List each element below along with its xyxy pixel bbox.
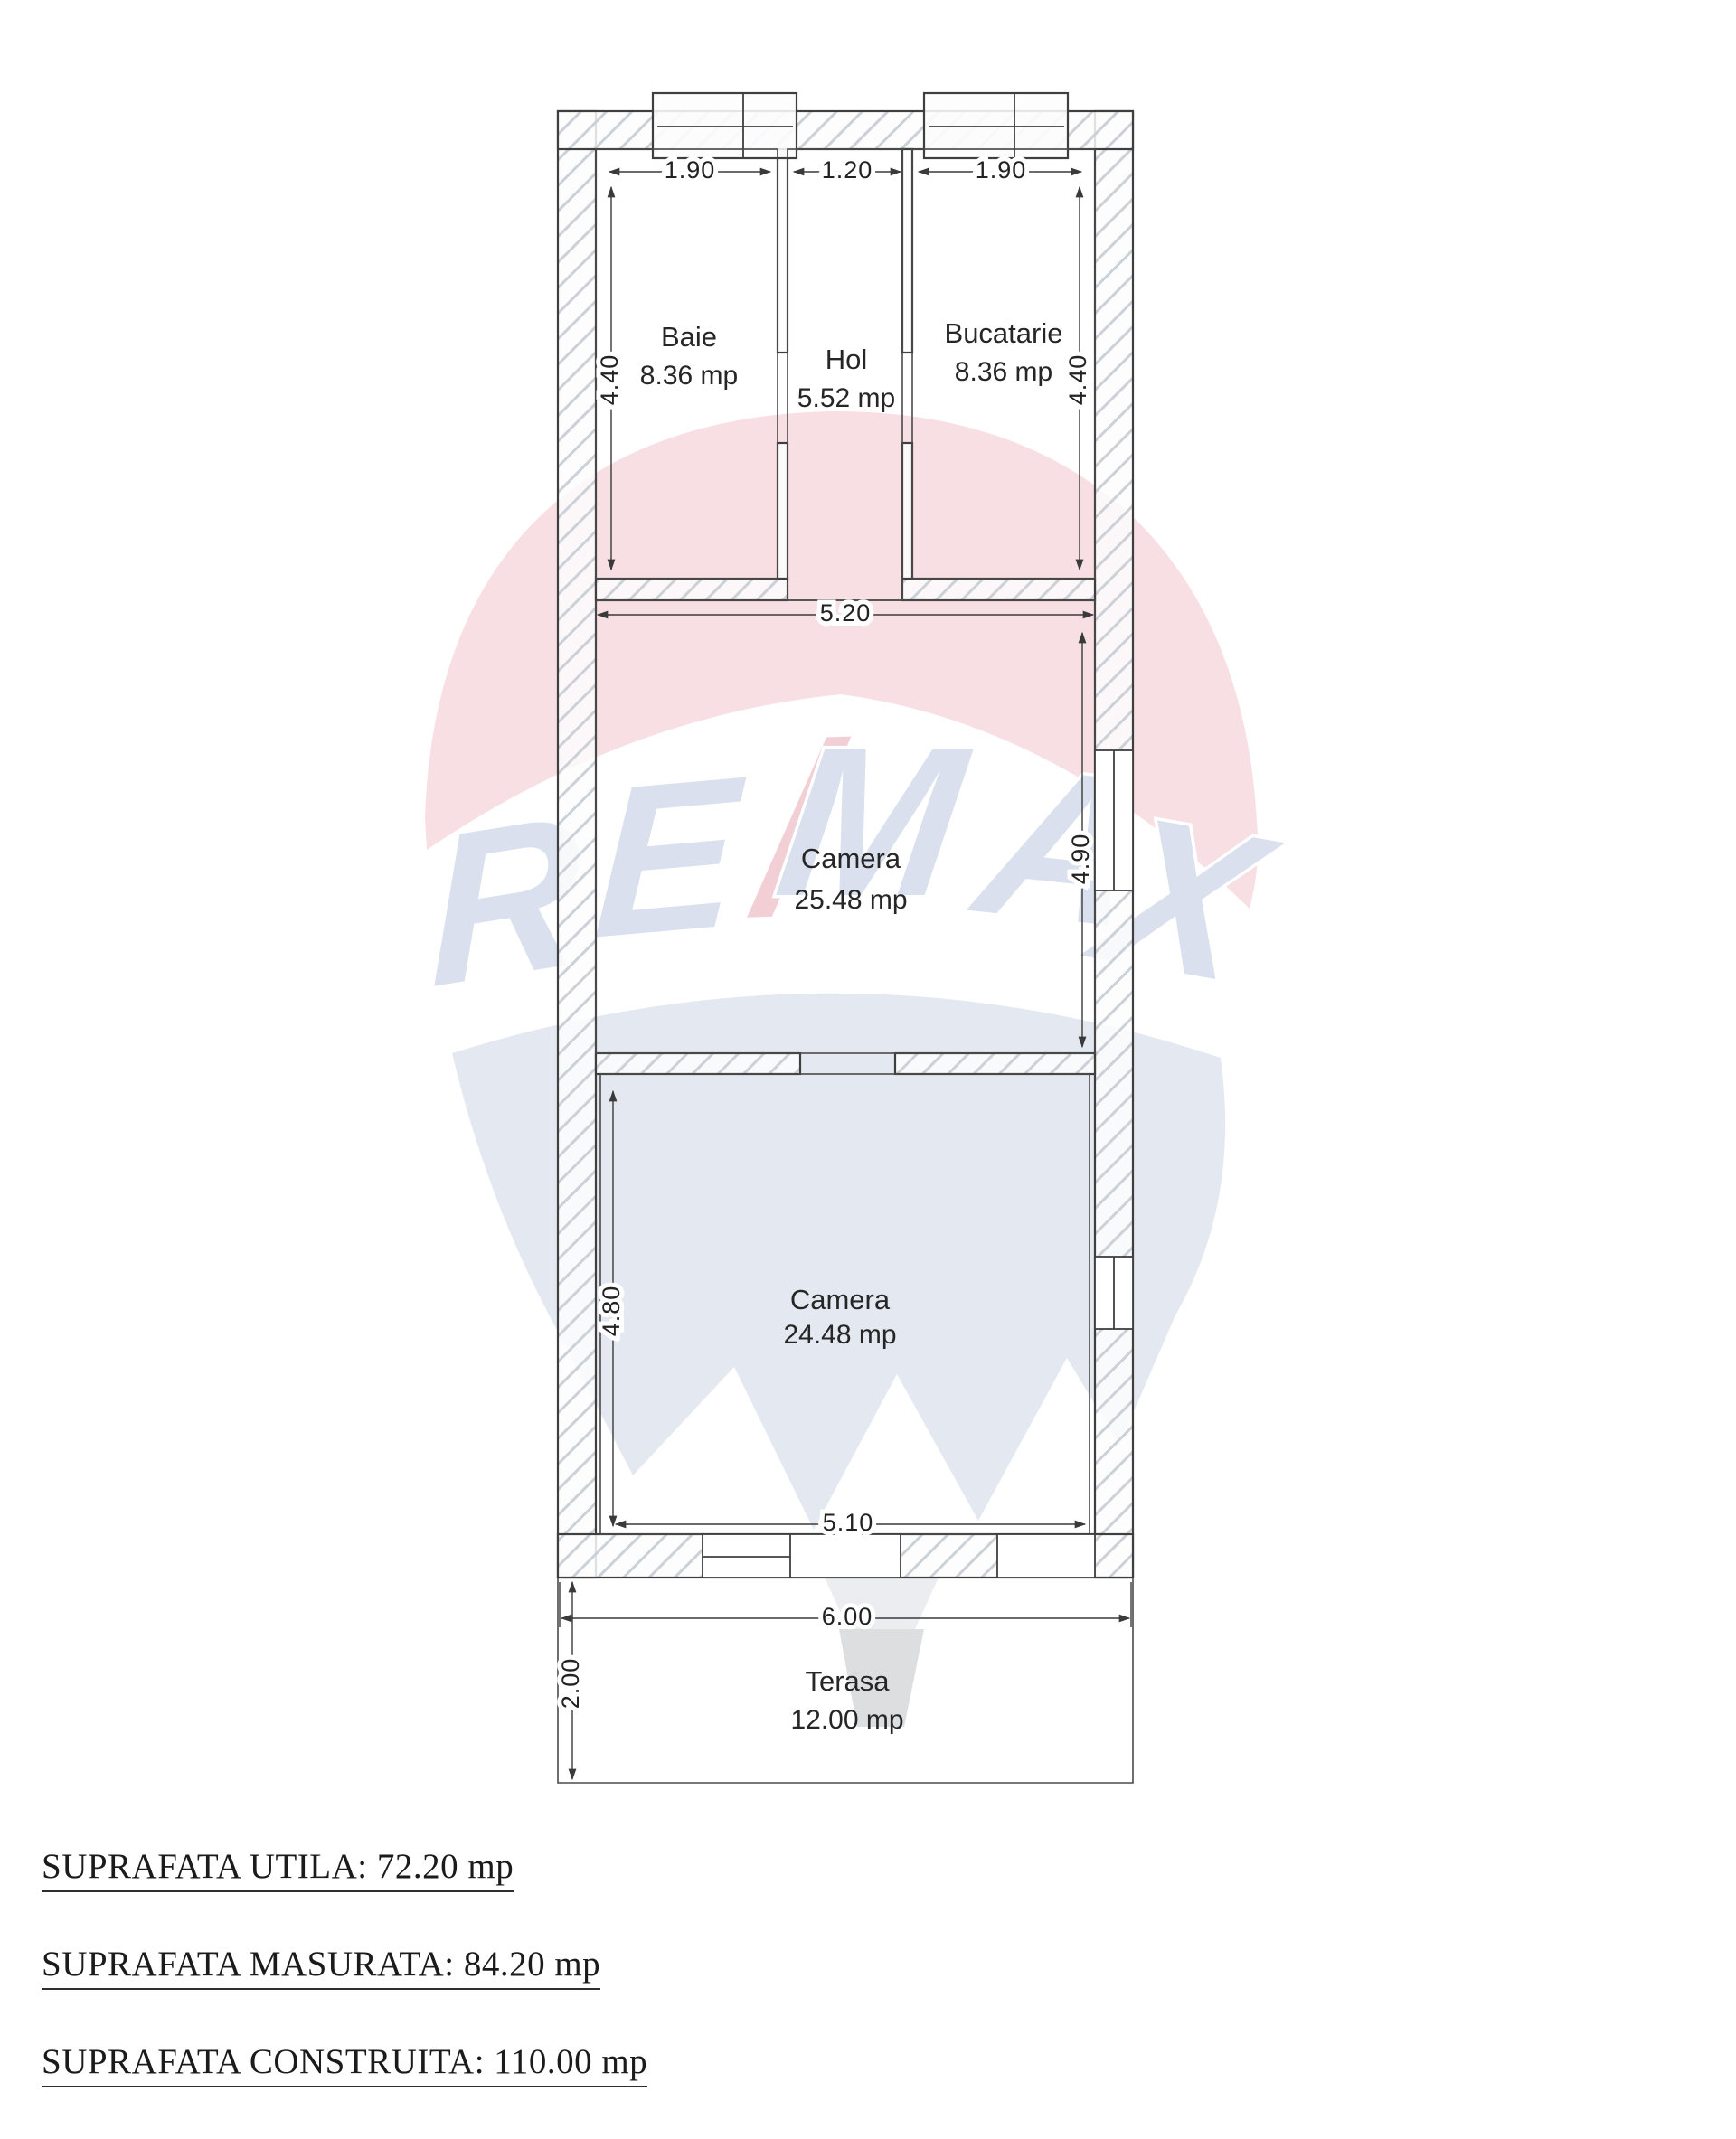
window-bottom-right xyxy=(997,1534,1095,1578)
summary-line-construita: SUPRAFATA CONSTRUITA: 110.00 mp xyxy=(42,2041,855,2087)
area-summary: SUPRAFATA UTILA: 72.20 mp SUPRAFATA MASU… xyxy=(42,1846,855,2139)
room-area-hol: 5.52 mp xyxy=(797,383,895,413)
summary-masurata-text: SUPRAFATA MASURATA: 84.20 mp xyxy=(42,1944,600,1990)
summary-utila-text: SUPRAFATA UTILA: 72.20 mp xyxy=(42,1846,514,1892)
french-window-bottom xyxy=(703,1534,901,1578)
wall-b-left xyxy=(596,1053,800,1074)
room-label-bucatarie: Bucatarie xyxy=(945,317,1063,349)
room-area-camera-mare: 25.48 mp xyxy=(794,885,907,915)
summary-line-utila: SUPRAFATA UTILA: 72.20 mp xyxy=(42,1846,855,1892)
dim-label-house-width: 6.00 xyxy=(822,1603,873,1630)
dim-label-camera-mare-height: 4.90 xyxy=(1067,834,1094,885)
dim-label-baie-height: 4.40 xyxy=(596,354,623,406)
floor-plan-svg: R E / M A X xyxy=(0,0,1736,2079)
wall-left xyxy=(558,111,596,1578)
partition-hol-bucatarie-lower xyxy=(902,443,912,579)
dim-label-camera-mica-height: 4.80 xyxy=(598,1286,625,1337)
room-area-bucatarie: 8.36 mp xyxy=(955,357,1052,387)
dim-label-hol-width: 1.20 xyxy=(822,156,873,184)
dim-label-bucatarie-height: 4.40 xyxy=(1064,354,1091,406)
room-label-camera-mare: Camera xyxy=(801,843,901,874)
dim-label-bucatarie-width: 1.90 xyxy=(976,156,1027,184)
partition-baie-hol-upper xyxy=(778,149,788,353)
room-label-camera-mica: Camera xyxy=(790,1284,891,1315)
wall-b-right xyxy=(895,1053,1095,1074)
room-label-baie: Baie xyxy=(661,321,717,353)
room-label-hol: Hol xyxy=(826,344,868,375)
room-area-baie: 8.36 mp xyxy=(640,361,738,391)
remax-letter-e: E xyxy=(590,731,749,984)
dim-label-camera-mica-width: 5.10 xyxy=(823,1509,874,1536)
partition-baie-hol-lower xyxy=(778,443,788,579)
dim-label-baie-width: 1.90 xyxy=(665,156,716,184)
room-area-camera-mica: 24.48 mp xyxy=(783,1320,896,1350)
scanned-floor-plan-page: { "watermark": { "brand": "RE/MAX", "let… xyxy=(0,0,1736,2079)
summary-construita-text: SUPRAFATA CONSTRUITA: 110.00 mp xyxy=(42,2041,647,2087)
partition-hol-bucatarie-upper xyxy=(902,149,912,353)
summary-line-masurata: SUPRAFATA MASURATA: 84.20 mp xyxy=(42,1944,855,1990)
room-area-terasa: 12.00 mp xyxy=(790,1705,903,1735)
dim-label-camera-mare-width: 5.20 xyxy=(820,599,872,627)
dim-label-terasa-height: 2.00 xyxy=(557,1658,584,1710)
wall-a-right xyxy=(902,579,1095,600)
window-camera-mica-right xyxy=(1095,1257,1133,1329)
window-camera-mare-right xyxy=(1095,750,1133,890)
room-label-terasa: Terasa xyxy=(805,1665,890,1697)
wall-a-left xyxy=(596,579,788,600)
